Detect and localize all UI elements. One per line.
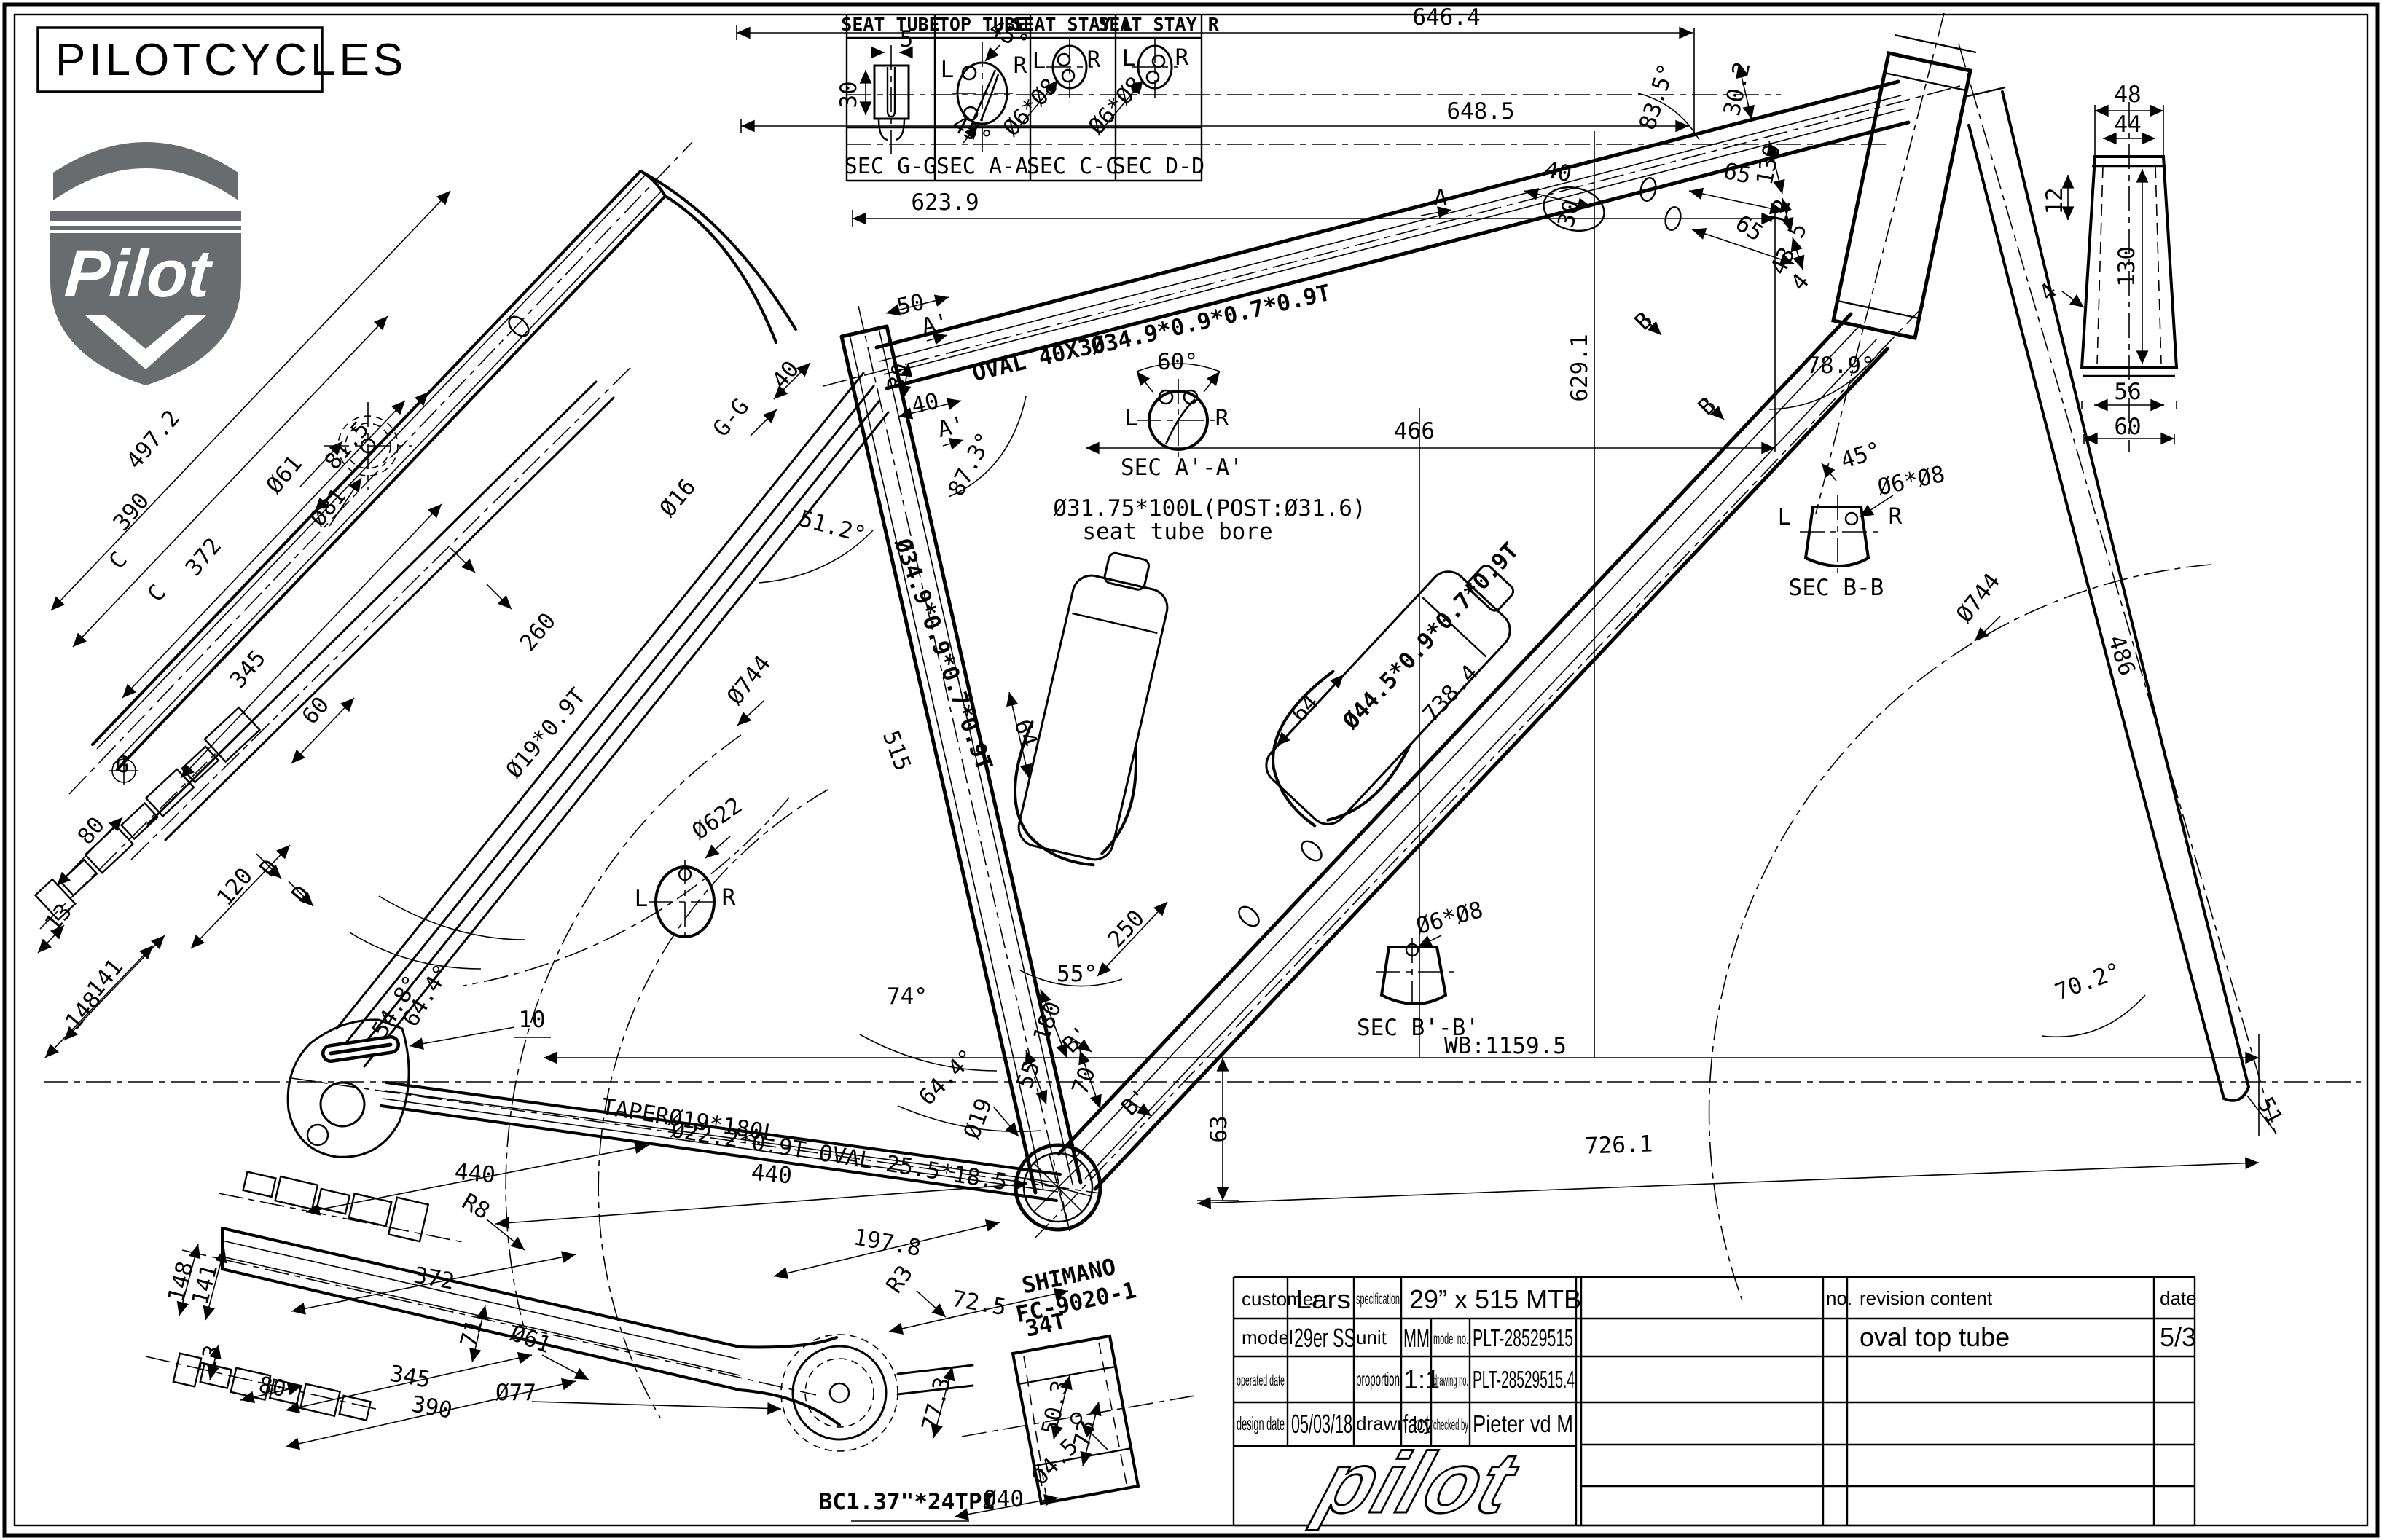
dim-label: 440 [453,1159,496,1189]
design-date-label: design date [1237,1413,1285,1434]
dim-label: 83.5° [1634,60,1680,133]
dim-label: 44 [2114,111,2141,138]
dim-label: 45° [1838,437,1884,475]
dim-label: 515 [877,727,916,774]
dim-label: R8 [458,1188,494,1225]
proportion-label: proportion [1356,1368,1400,1390]
shield-text: Pilot [63,236,216,311]
dim-label: 372 [181,533,227,581]
model-no-value: PLT-28529515 [1473,1324,1573,1351]
model-no-label: model no. [1433,1331,1468,1348]
dim-label: L [1122,45,1136,71]
pilot-outline-logo: pilot [1306,1434,1530,1531]
dim-label: Ø61 [507,1320,555,1359]
dim-label: 60° [1157,349,1198,375]
dim-label: 345 [225,645,272,694]
dim-label: R [1087,47,1101,73]
shield-logo: Pilot [50,142,241,385]
dim-label: 65 [1721,158,1753,189]
dim-label: 70 [1067,1064,1101,1098]
rev-content-value: oval top tube [1860,1322,2010,1352]
dim-label: 70.2° [2052,958,2125,1006]
dim-label: A' [936,412,968,443]
chainstay-section-glyph [649,860,721,944]
col-header: SEAT TUBE [841,14,939,35]
dim-label: R [1014,52,1027,79]
dim-label: B' [1057,1021,1095,1058]
dim-label: 55° [1057,961,1097,987]
dim-label: 390 [109,488,155,536]
sec-gg-glyph [866,45,912,157]
dim-label: 40 [1542,157,1574,188]
dim-label: SEC A'-A' [1121,455,1243,481]
dim-label: 45° [948,111,996,153]
dim-label: 250 [1102,905,1150,953]
dim-label: Ø19 [959,1095,998,1142]
dim-label: 65 [1731,210,1768,247]
dim-label: 30 [1553,197,1585,230]
dim-label: 646.4 [1412,4,1480,31]
dim-label: Ø61 [262,451,308,499]
dim-label: Ø34.9*0.9*0.7*0.9T [1088,280,1333,361]
dim-label: R [1175,44,1189,71]
sec-a-prime-glyph [1137,364,1220,462]
sec-label: SEC C-C [1027,154,1118,179]
dim-label: L [1125,405,1139,431]
model-value: 29er SS [1294,1323,1355,1353]
dim-label: 74° [887,983,928,1010]
dim-label: 13 [40,899,78,937]
dim-label: 78.9° [1806,353,1874,379]
dim-label: 40 [767,356,805,394]
dim-label: 10 [518,1007,545,1033]
dim-label: 497.2 [122,405,186,474]
dim-label: 197.8 [852,1224,923,1262]
sec-label: SEC A-A [936,154,1028,179]
dim-label: B [1630,307,1658,336]
dim-label: L [1033,48,1046,74]
dim-label: Ø744 [722,651,776,710]
dim-label: 648.5 [1446,98,1514,125]
rev-content-label: revision content [1860,1287,1993,1309]
dim-label: Ø31.75*100L(POST:Ø31.6) [1053,495,1366,522]
specification-value: 29” x 515 MTB [1409,1284,1581,1314]
dim-label: G [116,752,130,778]
checked-by-label: checked by [1433,1417,1468,1434]
dim-label: 40 [909,388,941,420]
dim-label: 372 [412,1262,456,1295]
dim-label: 30.2 [1719,60,1756,119]
dim-label: 390 [410,1391,454,1424]
dim-label: A [1434,185,1448,211]
col-header: SEAT STAY R [1098,14,1220,35]
dim-label: L [1778,504,1792,530]
dim-label: G-G [708,394,755,442]
dim-label: 440 [750,1160,793,1190]
cad-drawing: PILOTCYCLES Pilot [0,0,2382,1540]
dim-label: Ø16 [655,474,702,522]
dim-label: R [1215,405,1229,431]
rev-date-value: 5/3 [2160,1322,2196,1352]
dim-label: 50.3 [1037,1378,1074,1437]
dim-label: 51 [2252,1093,2287,1129]
dim-label: Ø622 [687,793,747,845]
model-label: model [1242,1327,1293,1348]
sec-label: SEC D-D [1113,154,1204,179]
fork-and-headtube-detail [1967,87,2249,1101]
rev-date-label: date [2160,1287,2197,1309]
wordmark: PILOTCYCLES [55,35,407,85]
dim-label: 629.1 [1567,334,1593,401]
sec-b-prime-glyph [1376,935,1454,1008]
dim-label: 51.2° [796,506,869,549]
dim-label: WB:1159.5 [1444,1033,1567,1059]
dim-label: 64 [1286,689,1324,727]
drawing-no-value: PLT-28529515.4 [1473,1366,1575,1393]
dim-label: SEC B-B [1789,575,1884,601]
dim-label: 466 [1394,418,1435,444]
dim-label: R [722,884,736,911]
dim-label: 71 [455,1317,487,1350]
dim-label: 5 [900,26,914,52]
dim-label: Ø6*Ø8 [1414,897,1486,940]
dim-label: Ø6*Ø8 [1876,461,1948,501]
dim-label: Ø77 [495,1380,536,1406]
dim-label: 48 [2114,82,2141,108]
dim-label: L [635,886,649,912]
dim-label: 43.5 [1765,219,1812,279]
dim-label: B [1693,393,1722,421]
chainstay-assembly [173,1163,1138,1504]
dim-label: OVAL 40X30 [970,331,1108,387]
drawing-no-label: drawing no. [1433,1372,1468,1389]
specification-label: specification [1356,1291,1400,1308]
dim-label: R3 [881,1261,918,1298]
water-bottle-seat-tube [1000,543,1186,872]
dim-label: 77.3 [917,1375,956,1434]
sec-label: SEC G-G [845,154,936,179]
dim-label: 623.9 [911,189,979,216]
operated-date-label: operated date [1237,1372,1285,1389]
dim-label: L [941,57,955,83]
customer-value: Lars [1296,1284,1351,1314]
dim-label: 63 [1206,1115,1232,1142]
dim-label: BC1.37"*24TPI [819,1489,996,1515]
dim-label: 12 [2042,187,2068,214]
dim-label: 260 [515,608,562,656]
dim-label: 60 [2114,414,2141,440]
dim-label: seat tube bore [1082,519,1272,545]
dim-label: 738.4 [1418,660,1484,728]
page-border [4,4,2378,1536]
dim-label: 130 [2114,246,2140,287]
dim-label: 30 [836,81,862,108]
brand-block: PILOTCYCLES Pilot [38,28,407,385]
dim-label: 130 [1752,142,1786,187]
dim-label: C [143,580,172,607]
dim-label: 80 [73,812,111,850]
dim-label: 13 [194,1343,226,1375]
unit-value: MM [1403,1323,1430,1353]
unit-label: unit [1356,1327,1387,1348]
dim-label: 345 [388,1361,432,1394]
title-block: customer Lars specification 29” x 515 MT… [1234,1277,2197,1531]
dim-label: 56 [2114,379,2141,405]
dim-label: 80 [256,1372,288,1402]
checked-by-value: Pieter vd M [1473,1410,1573,1437]
dim-label: R [1889,503,1903,530]
dim-label: 120 [212,863,259,911]
rev-no-label: no. [1826,1287,1852,1309]
dim-label: 55 [1011,1058,1046,1092]
centerlines [40,13,2361,1437]
dim-label: 726.1 [1584,1131,1653,1159]
dim-label: Ø22.2*0.9T OVAL 25.5*18.5 [669,1117,1008,1196]
